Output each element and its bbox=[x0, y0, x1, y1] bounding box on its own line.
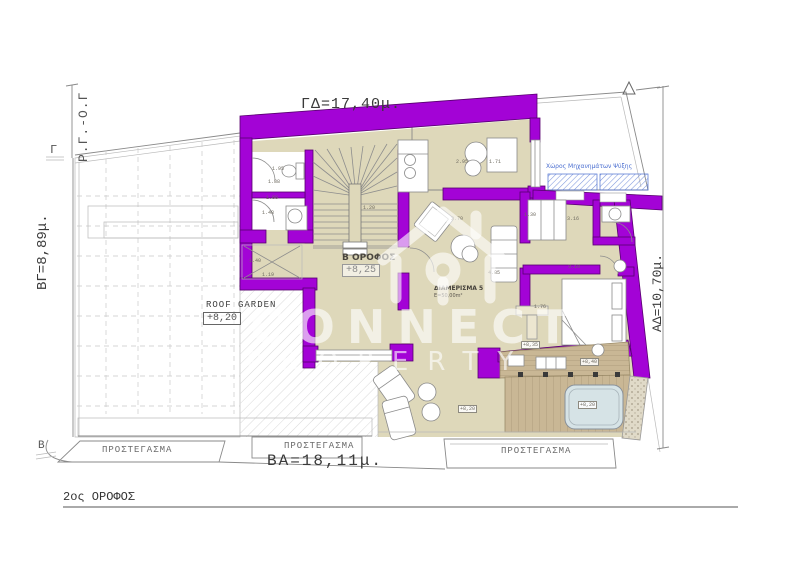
dim-label: +8,40 bbox=[580, 358, 599, 366]
apartment-area: Ε=50,00m² bbox=[434, 293, 463, 299]
dimension-bottom: ΒΑ=18,11μ. bbox=[267, 452, 383, 470]
dim-label: 1.88 bbox=[266, 195, 278, 201]
floor-ref-level: +8,25 bbox=[342, 264, 380, 277]
dim-label: 1.40 bbox=[249, 258, 261, 264]
dimension-top: ΓΔ=17,40μ. bbox=[301, 96, 401, 113]
plan-dimension-labels: 1.951.881.881.481.401.191.202.951.713.70… bbox=[0, 0, 800, 566]
roof-garden-label: ROOF GARDEN bbox=[206, 300, 276, 310]
dim-label: 1.71 bbox=[489, 159, 501, 165]
floor-plan-page: 1.951.881.881.481.401.191.202.951.713.70… bbox=[0, 0, 800, 566]
dim-label: 1.95 bbox=[272, 166, 284, 172]
dimension-left: ΒΓ=8,89μ. bbox=[35, 214, 51, 290]
dim-label: +8,20 bbox=[578, 401, 597, 409]
dim-label: 3.70 bbox=[451, 216, 463, 222]
gamma-marker: Γ bbox=[50, 143, 57, 157]
boundary-label: Ρ.Γ.-Ο.Γ bbox=[76, 92, 91, 162]
dim-label: 3.16 bbox=[567, 216, 579, 222]
dim-label: 1.76 bbox=[534, 304, 546, 310]
dim-label: 4.85 bbox=[488, 270, 500, 276]
floor-title: 2ος ΟΡΟΦΟΣ bbox=[63, 490, 135, 504]
dim-label: 1.48 bbox=[262, 210, 274, 216]
roof-garden-level: +8,20 bbox=[203, 312, 241, 325]
canopy-label-2: ΠΡΟΣΤΕΓΑΣΜΑ bbox=[284, 441, 354, 451]
dim-label: 1.88 bbox=[268, 179, 280, 185]
machinery-label: Χώρος Μηχανημάτων Ψύξης bbox=[546, 163, 632, 170]
dim-label: 2.95 bbox=[456, 159, 468, 165]
dim-label: 3.19 bbox=[568, 264, 580, 270]
dim-label: 1.20 bbox=[363, 205, 375, 211]
dim-label: +8,35 bbox=[521, 341, 540, 349]
apartment-label: ΔΙΑΜΕΡΙΣΜΑ 5 bbox=[434, 285, 483, 292]
beta-marker: Β bbox=[38, 440, 45, 452]
dim-label: +8,20 bbox=[458, 405, 477, 413]
dimension-right: ΑΔ=10,70μ. bbox=[650, 254, 665, 332]
floor-ref-label: Β ΟΡΟΦΟΣ bbox=[342, 253, 395, 263]
dim-label: 1.30 bbox=[524, 212, 536, 218]
dim-label: 1.19 bbox=[262, 272, 274, 278]
canopy-label-3: ΠΡΟΣΤΕΓΑΣΜΑ bbox=[501, 446, 571, 456]
canopy-label-1: ΠΡΟΣΤΕΓΑΣΜΑ bbox=[102, 445, 172, 455]
